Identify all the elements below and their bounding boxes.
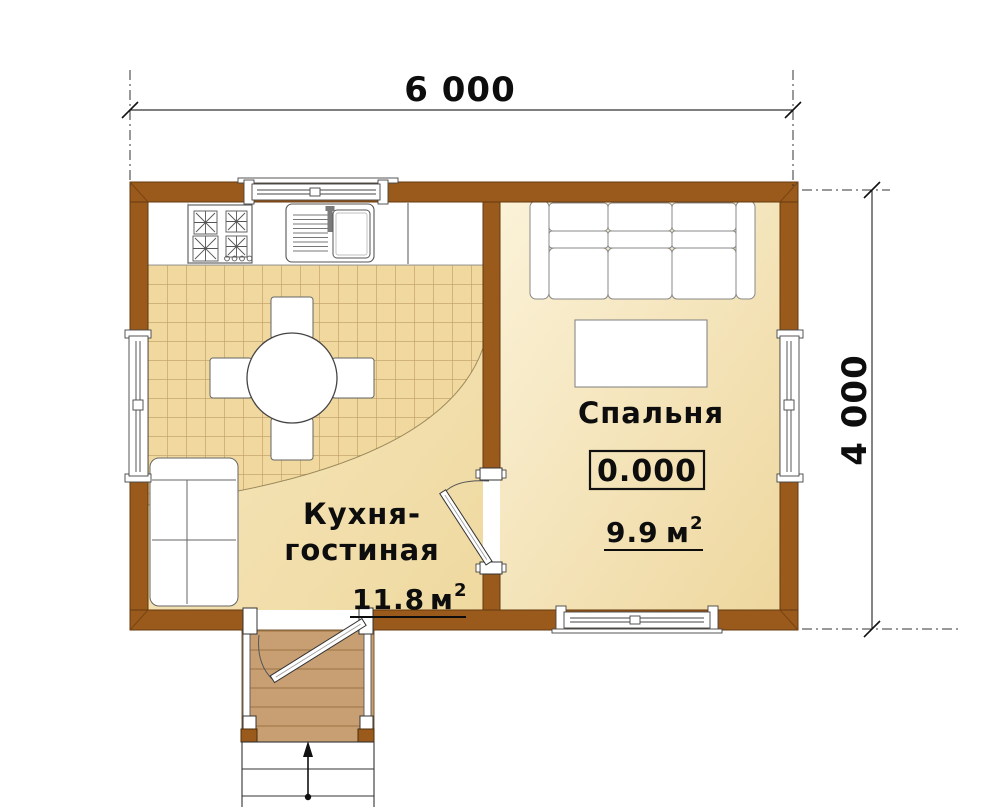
wall-top [130, 182, 798, 202]
kitchen-sink [286, 204, 374, 262]
porch-base-left [241, 729, 257, 742]
svg-text:9.9: 9.9 [606, 516, 659, 549]
stove [188, 205, 252, 263]
bedroom-room-label: Спальня [578, 396, 724, 430]
level-mark: 0.000 [597, 454, 697, 489]
window-top [238, 178, 398, 204]
porch [241, 630, 374, 742]
sofa-armrest [530, 201, 549, 299]
svg-text:2: 2 [454, 580, 467, 601]
window-left [125, 330, 151, 482]
porch-post [243, 716, 256, 729]
partition-wall-upper [483, 202, 500, 478]
porch-post [360, 716, 373, 729]
porch-base-right [358, 729, 374, 742]
svg-text:2: 2 [690, 513, 703, 534]
dimension-top-label: 6 000 [404, 70, 515, 110]
window-right [777, 330, 803, 482]
bedroom-sofa [530, 201, 755, 299]
faucet-icon [326, 206, 335, 211]
wall-bottom-left [130, 610, 245, 630]
porch-deck [242, 630, 374, 742]
chair [210, 358, 252, 398]
svg-text:м: м [430, 583, 454, 616]
chair [332, 358, 374, 398]
svg-text:м: м [666, 516, 690, 549]
sofa-armrest [736, 201, 755, 299]
dining-table [247, 333, 337, 423]
door-jamb [480, 468, 502, 480]
floor-plan-drawing: 6 000 4 000 Спальня 0.000 9.9 м 2 Кухня-… [0, 0, 1000, 807]
kitchen-room-label-line1: Кухня- [303, 497, 421, 531]
dimension-right [802, 182, 958, 637]
chair [271, 418, 313, 460]
kitchen-sofa [150, 458, 238, 606]
dimension-right-label: 4 000 [835, 354, 875, 465]
door-jamb [243, 608, 257, 634]
kitchen-area-label: 11.8 м 2 [350, 580, 467, 617]
bedroom-area-label: 9.9 м 2 [604, 513, 703, 550]
floor-plan-page: 6 000 4 000 Спальня 0.000 9.9 м 2 Кухня-… [0, 0, 1000, 807]
kitchen-room-label-line2: гостиная [284, 533, 440, 567]
coffee-table [575, 320, 707, 387]
svg-text:11.8: 11.8 [352, 583, 425, 616]
door-jamb [480, 562, 502, 574]
